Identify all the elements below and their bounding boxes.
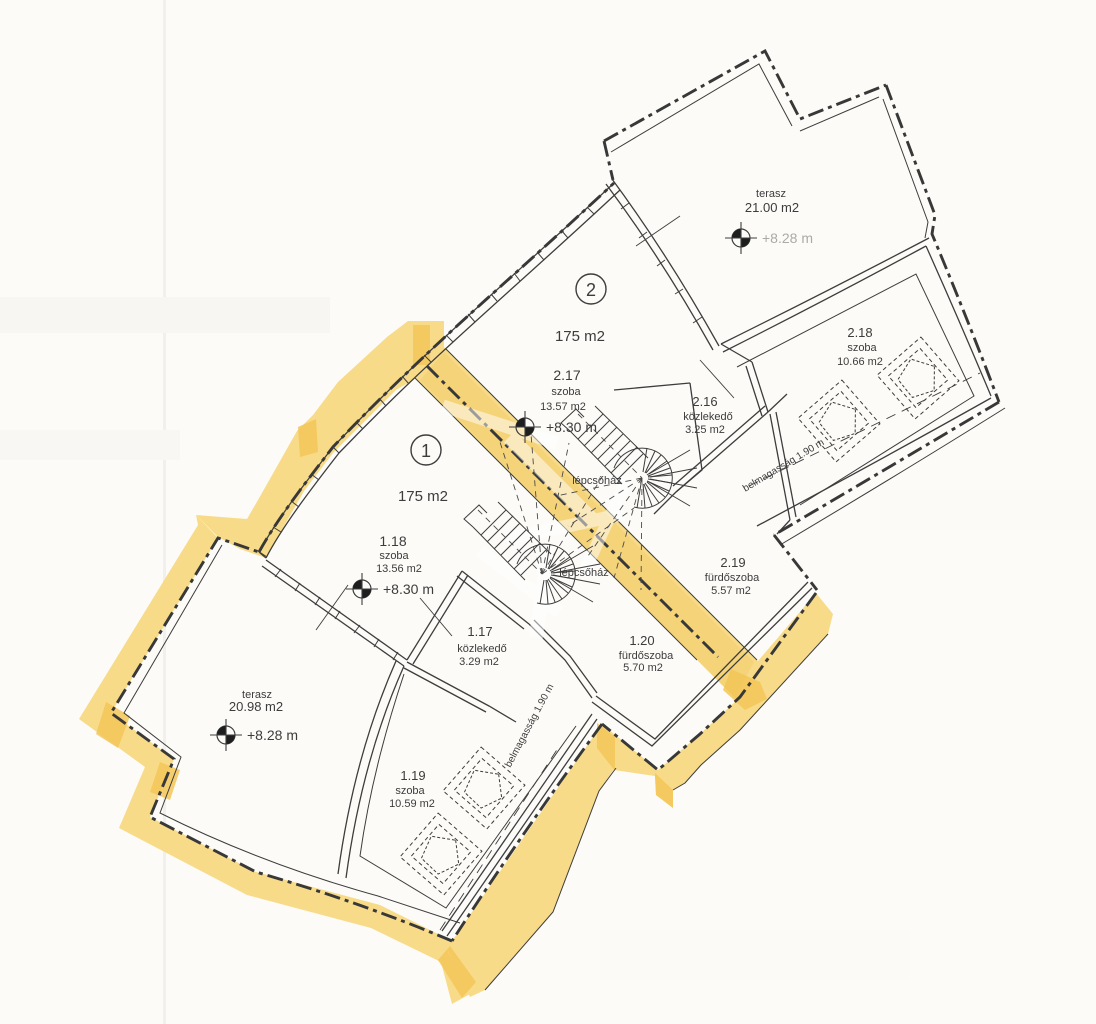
- svg-text:szoba: szoba: [379, 550, 409, 562]
- svg-text:1.18: 1.18: [379, 533, 406, 549]
- svg-text:3.29 m2: 3.29 m2: [459, 656, 499, 668]
- svg-text:1.17: 1.17: [467, 624, 492, 639]
- svg-text:5.70 m2: 5.70 m2: [623, 662, 663, 674]
- svg-text:szoba: szoba: [551, 386, 581, 398]
- svg-text:1.19: 1.19: [400, 768, 425, 783]
- svg-text:+8.30 m: +8.30 m: [383, 581, 434, 597]
- svg-text:lépcsőház: lépcsőház: [559, 567, 609, 579]
- svg-text:2.18: 2.18: [847, 325, 872, 340]
- svg-text:+8.28 m: +8.28 m: [247, 727, 298, 743]
- svg-text:terasz: terasz: [756, 188, 786, 200]
- svg-text:lépcsőház: lépcsőház: [572, 475, 622, 487]
- svg-text:5.57 m2: 5.57 m2: [711, 585, 751, 597]
- svg-text:10.59 m2: 10.59 m2: [389, 798, 435, 810]
- svg-text:2: 2: [586, 280, 596, 300]
- svg-text:175 m2: 175 m2: [555, 328, 605, 345]
- svg-text:közlekedő: közlekedő: [683, 411, 733, 423]
- svg-text:21.00 m2: 21.00 m2: [745, 200, 799, 215]
- svg-text:közlekedő: közlekedő: [457, 643, 507, 655]
- svg-text:1.20: 1.20: [629, 633, 654, 648]
- svg-text:175 m2: 175 m2: [398, 488, 448, 505]
- svg-text:+8.28 m: +8.28 m: [762, 230, 813, 246]
- svg-text:3.25 m2: 3.25 m2: [685, 424, 725, 436]
- svg-text:13.56 m2: 13.56 m2: [376, 563, 422, 575]
- svg-text:2.19: 2.19: [720, 555, 745, 570]
- svg-text:20.98 m2: 20.98 m2: [229, 699, 283, 714]
- svg-text:szoba: szoba: [395, 785, 425, 797]
- svg-text:2.16: 2.16: [692, 394, 717, 409]
- svg-text:fürdőszoba: fürdőszoba: [705, 572, 760, 584]
- svg-text:+8.30 m: +8.30 m: [546, 419, 597, 435]
- svg-text:1: 1: [421, 441, 431, 461]
- svg-text:2.17: 2.17: [553, 367, 580, 383]
- svg-text:10.66 m2: 10.66 m2: [837, 356, 883, 368]
- svg-text:szoba: szoba: [847, 342, 877, 354]
- svg-text:13.57 m2: 13.57 m2: [540, 401, 586, 413]
- svg-text:fürdőszoba: fürdőszoba: [619, 650, 674, 662]
